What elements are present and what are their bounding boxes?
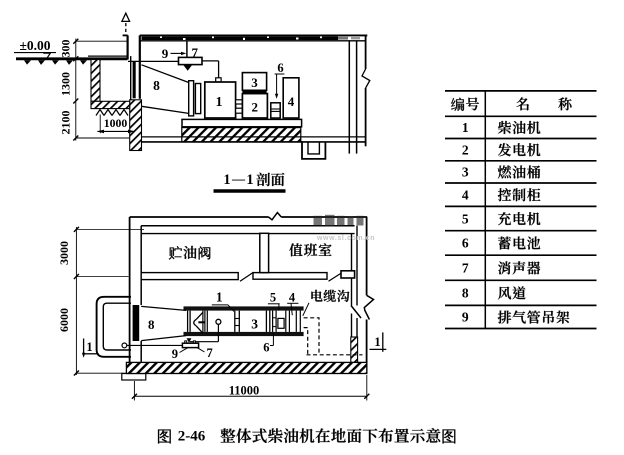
svg-text:2-46: 2-46 [178, 429, 206, 445]
svg-text:3000: 3000 [57, 241, 71, 265]
svg-text:1300: 1300 [58, 72, 72, 96]
svg-text:1: 1 [223, 172, 230, 188]
svg-text:±0.00: ±0.00 [19, 38, 50, 53]
svg-text:3: 3 [251, 316, 258, 331]
svg-text:8: 8 [148, 317, 155, 332]
svg-text:3: 3 [251, 75, 258, 90]
svg-text:9: 9 [172, 347, 178, 361]
svg-text:1: 1 [374, 335, 380, 349]
svg-text:6: 6 [277, 61, 283, 75]
svg-text:2: 2 [462, 142, 469, 157]
svg-text:1: 1 [216, 290, 223, 305]
svg-text:300: 300 [58, 40, 72, 58]
svg-text:7: 7 [191, 45, 198, 60]
svg-text:11000: 11000 [229, 384, 260, 398]
svg-text:5: 5 [270, 290, 276, 304]
svg-text:www.sl.com.cn: www.sl.com.cn [316, 235, 375, 242]
svg-text:3: 3 [462, 165, 469, 180]
svg-text:7: 7 [462, 260, 469, 275]
svg-text:6: 6 [263, 341, 269, 355]
svg-text:2100: 2100 [58, 111, 72, 135]
svg-text:2: 2 [252, 100, 259, 115]
svg-text:4: 4 [289, 290, 296, 304]
svg-text:8: 8 [153, 78, 160, 93]
svg-text:8: 8 [462, 286, 469, 301]
svg-text:9: 9 [462, 310, 469, 325]
svg-text:6000: 6000 [57, 308, 71, 332]
svg-text:1: 1 [462, 120, 469, 135]
svg-text:1: 1 [246, 172, 253, 188]
svg-text:—: — [231, 171, 246, 186]
svg-text:9: 9 [162, 46, 169, 61]
svg-text:1: 1 [216, 95, 223, 110]
svg-text:6: 6 [462, 236, 469, 251]
svg-text:1000: 1000 [104, 116, 128, 130]
svg-text:4: 4 [462, 187, 469, 202]
svg-text:4: 4 [288, 94, 295, 109]
svg-text:1: 1 [86, 340, 92, 354]
svg-text:5: 5 [462, 211, 469, 226]
svg-text:7: 7 [206, 346, 212, 360]
